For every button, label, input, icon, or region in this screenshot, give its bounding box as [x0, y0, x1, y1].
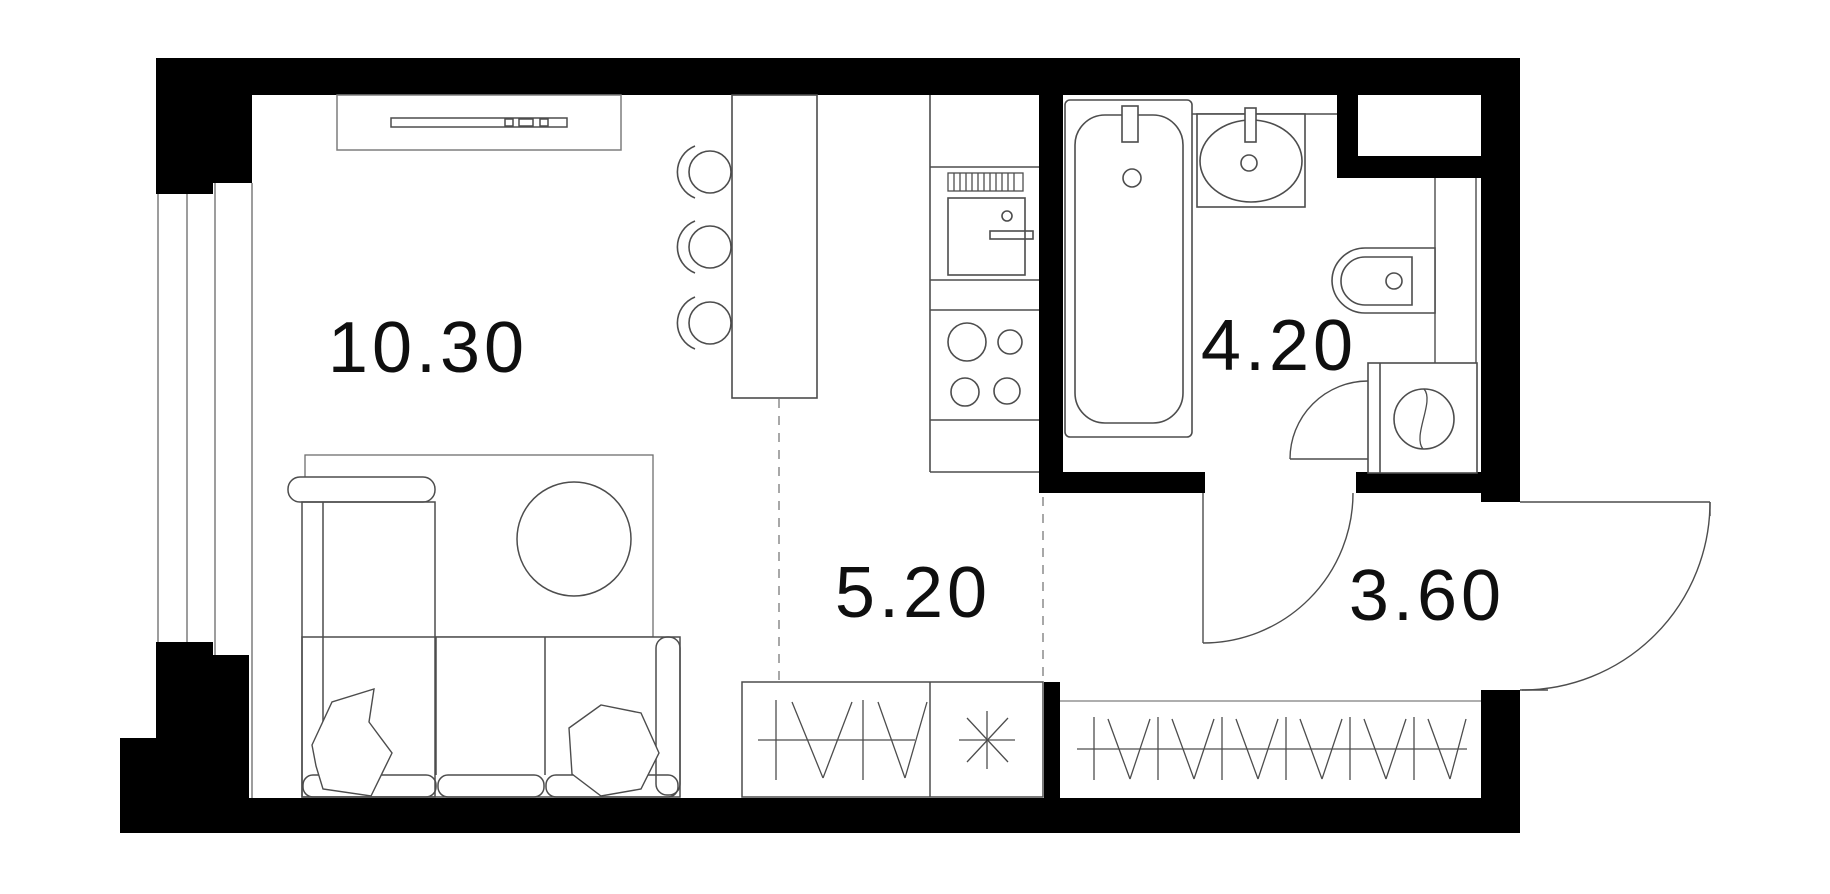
wall-bottomleft-step	[156, 642, 213, 655]
wall-topleft-block	[156, 58, 252, 183]
toilet-icon	[1332, 248, 1435, 313]
wardrobe-hallway	[1060, 701, 1481, 780]
wall-bottom	[120, 798, 1520, 833]
floor-plan: 10.30 5.20 4.20 3.60	[0, 0, 1830, 894]
bathroom-door	[1290, 381, 1368, 459]
wall-top	[156, 58, 1520, 95]
wall-bottomleft-block	[156, 655, 249, 798]
zone-divider	[779, 399, 1043, 682]
wall-right-upper	[1481, 58, 1520, 502]
bar-stool	[677, 297, 731, 349]
room-label-hallway: 3.60	[1349, 556, 1505, 636]
wall-right-lower	[1481, 690, 1520, 833]
kitchen-counter	[930, 95, 1039, 472]
bar-stool	[677, 146, 731, 198]
wall-bath-bottom-left	[1039, 472, 1205, 493]
floor-plan-svg: 10.30 5.20 4.20 3.60	[0, 0, 1830, 894]
wall-topleft-step	[156, 183, 213, 194]
oven-icon	[948, 198, 1033, 275]
wall-wardrobe-stub	[1044, 682, 1060, 798]
tv-screen	[391, 118, 567, 127]
bar-stools	[677, 146, 731, 349]
bar-stool	[677, 221, 731, 273]
cooktop-icon	[948, 323, 1022, 406]
tv-console	[337, 95, 621, 150]
wall-niche-left	[1337, 95, 1358, 178]
bar-counter	[732, 95, 817, 398]
interior-door	[1203, 493, 1353, 643]
wall-niche-bottom	[1356, 156, 1481, 178]
wall-bath-bottom-right	[1356, 472, 1481, 493]
wash-basin-icon	[1197, 108, 1305, 207]
entrance-door	[1520, 502, 1710, 690]
room-label-living: 10.30	[328, 308, 528, 388]
vent-grill-icon	[948, 173, 1023, 191]
washing-machine-icon	[1368, 363, 1477, 473]
room-label-kitchen: 5.20	[835, 553, 991, 633]
wardrobe-kitchen	[742, 682, 1043, 797]
dining-table	[517, 482, 631, 596]
bathtub-icon	[1065, 100, 1192, 437]
wall-bottomleft-jut	[120, 738, 160, 798]
room-label-bathroom: 4.20	[1201, 306, 1357, 386]
wall-kitchen-bathroom	[1039, 95, 1063, 493]
